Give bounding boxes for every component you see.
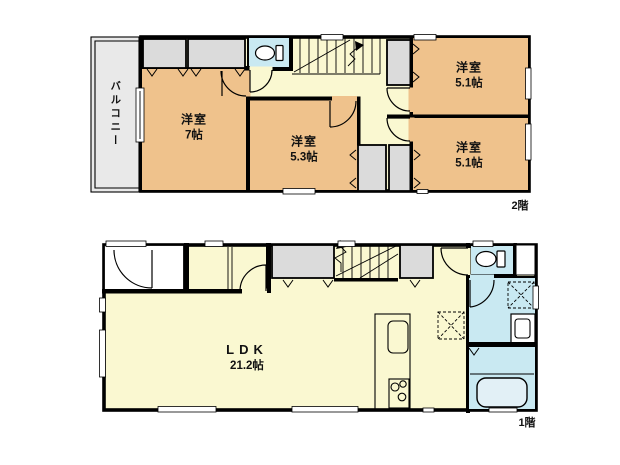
entrance	[104, 245, 184, 291]
floor1-label: 1階	[518, 416, 535, 430]
room-label-7jo: 洋室 7帖	[181, 113, 207, 144]
closet	[272, 245, 334, 278]
closet	[387, 40, 411, 85]
closet	[143, 39, 186, 68]
floor1-plan	[100, 240, 539, 413]
bathroom	[468, 346, 536, 410]
bathtub-icon	[477, 378, 527, 407]
washroom	[468, 277, 536, 345]
floorplan-drawing	[0, 0, 620, 465]
room-name: 洋室	[455, 61, 483, 77]
window	[100, 298, 106, 312]
room-label-5-1jo-top: 洋室 5.1帖	[455, 61, 483, 92]
window	[292, 407, 358, 413]
room-label-5-3jo: 洋室 5.3帖	[290, 135, 318, 166]
closet	[389, 145, 412, 191]
window	[526, 124, 532, 160]
window	[338, 241, 355, 247]
window	[414, 35, 436, 41]
room-name: 洋室	[455, 141, 483, 157]
room-name: LDK	[226, 342, 268, 359]
toilet-icon	[476, 251, 505, 267]
closet	[188, 39, 245, 68]
window	[321, 35, 343, 41]
room-label-5-1jo-bottom: 洋室 5.1帖	[455, 141, 483, 172]
room-size: 21.2帖	[226, 359, 268, 374]
room-name: 洋室	[181, 113, 207, 129]
window	[526, 68, 532, 99]
closet	[358, 145, 386, 191]
room-name: 洋室	[290, 135, 318, 151]
window	[283, 189, 315, 195]
vanity-sink-icon	[511, 314, 535, 343]
room-label-ldk: LDK 21.2帖	[226, 342, 268, 374]
window	[533, 286, 539, 309]
room-size: 5.1帖	[455, 156, 483, 171]
window	[158, 407, 216, 413]
toilet-icon	[256, 46, 284, 61]
window	[100, 330, 106, 377]
toilet-room-1f	[470, 245, 514, 275]
window	[205, 241, 223, 247]
floor2-label: 2階	[511, 199, 528, 213]
window	[417, 190, 428, 194]
balcony-label: バルコニー	[110, 80, 121, 148]
storage-nook	[516, 245, 535, 275]
window	[423, 408, 434, 412]
closet	[400, 245, 433, 278]
window	[473, 241, 493, 247]
floorplan-canvas: バルコニー 洋室 7帖 洋室 5.3帖 洋室 5.1帖 洋室 5.1帖 LDK …	[0, 0, 620, 465]
window	[489, 408, 517, 412]
room-size: 7帖	[181, 128, 207, 143]
window	[106, 241, 146, 247]
toilet-room-2f	[248, 37, 291, 70]
room-size: 5.1帖	[455, 76, 483, 91]
room-size: 5.3帖	[290, 150, 318, 165]
